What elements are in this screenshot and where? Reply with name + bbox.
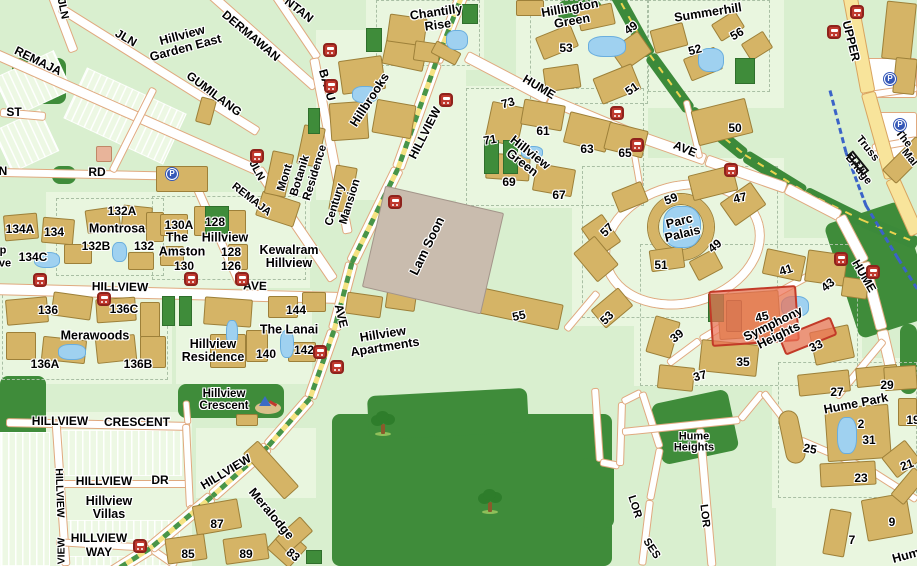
block-number-label: 140	[256, 348, 276, 360]
block-number-label: 9	[889, 516, 896, 528]
bus-stop-icon[interactable]	[834, 252, 848, 266]
map-canvas[interactable]: JLNREMAJAJLNGUMILANGDERMAWANNTANBATUSTNR…	[0, 0, 917, 566]
bus-stop-icon[interactable]	[323, 43, 337, 57]
block-number-label: 136C	[110, 303, 139, 315]
block-number-label: 130	[174, 260, 194, 272]
block-number-label: 63	[580, 143, 593, 155]
bus-stop-icon[interactable]	[439, 93, 453, 107]
building	[892, 57, 917, 95]
street-label: LOR	[625, 494, 643, 520]
block-number-label: 73	[500, 95, 516, 111]
block-number-label: 89	[239, 548, 252, 560]
street-label: VIEW	[57, 538, 68, 565]
block-number-label: 37	[692, 368, 708, 384]
car-park-icon[interactable]: P	[894, 119, 906, 131]
block-number-label: 87	[210, 518, 223, 530]
bus-stop-icon[interactable]	[33, 273, 47, 287]
pipeline-dashed-line	[829, 90, 848, 153]
block-number-label: 71	[482, 133, 497, 148]
block-number-label: 136B	[124, 358, 153, 370]
water-pool	[837, 417, 857, 454]
street-label: N	[0, 165, 7, 177]
block-number-label: 50	[728, 122, 741, 134]
block-number-label: 132	[134, 240, 154, 252]
sports-court	[179, 296, 192, 326]
block-number-label: 142	[294, 344, 314, 356]
car-park-icon[interactable]: P	[166, 168, 178, 180]
sports-court	[366, 28, 382, 52]
block-number-label: 132B	[82, 240, 111, 252]
bus-stop-icon[interactable]	[250, 149, 264, 163]
building	[345, 292, 384, 319]
water-pool	[588, 36, 626, 57]
bus-stop-icon[interactable]	[184, 272, 198, 286]
sports-court	[306, 550, 322, 564]
block-number-label: 69	[502, 176, 515, 188]
place-label: Hillview Apartments	[348, 323, 421, 360]
water-pool	[58, 344, 86, 360]
block-number-label: 61	[536, 125, 549, 137]
bus-stop-icon[interactable]	[724, 163, 738, 177]
place-label: The Lanai	[260, 324, 318, 337]
street-label: LOR	[697, 504, 711, 528]
tree-icon	[477, 489, 503, 515]
street-label: DERMAWAN	[220, 8, 283, 63]
block-number-label: 67	[552, 189, 565, 201]
water-pool	[446, 30, 468, 50]
road	[646, 447, 664, 500]
park-area	[580, 458, 614, 528]
bus-stop-icon[interactable]	[850, 5, 864, 19]
block-number-label: 19	[906, 414, 917, 426]
block-number-label: 132A	[108, 205, 137, 217]
block-number-label: 128	[221, 246, 241, 258]
bus-stop-icon[interactable]	[324, 79, 338, 93]
bus-stop-icon[interactable]	[827, 25, 841, 39]
water-pool	[112, 242, 127, 262]
sports-court	[462, 4, 478, 24]
bus-stop-icon[interactable]	[330, 360, 344, 374]
street-label: WAY	[86, 546, 112, 558]
bus-stop-icon[interactable]	[866, 265, 880, 279]
block-number-label: 55	[511, 309, 527, 324]
place-label: Montrosa	[89, 223, 145, 236]
street-label: HILLVIEW	[76, 475, 132, 487]
building	[371, 99, 416, 139]
sports-court	[735, 58, 755, 84]
block-number-label: 47	[732, 191, 748, 206]
street-label: ve	[0, 258, 11, 269]
building	[657, 364, 695, 392]
place-label: Merawoods	[61, 330, 130, 343]
place-label: Hillview	[202, 232, 249, 245]
street-label: HILLVIEW	[53, 468, 66, 518]
bus-stop-icon[interactable]	[97, 292, 111, 306]
block-number-label: 134A	[6, 223, 35, 235]
street-label: CRESCENT	[104, 416, 170, 428]
block-number-label: 134C	[19, 251, 48, 263]
place-label: Hillview Garden East	[145, 20, 223, 64]
block-number-label: 25	[802, 442, 817, 457]
car-park-icon[interactable]: P	[884, 73, 896, 85]
building	[819, 461, 876, 488]
street-label: RD	[88, 166, 105, 178]
block-number-label: 128	[205, 216, 225, 228]
bus-stop-icon[interactable]	[235, 272, 249, 286]
bus-stop-icon[interactable]	[313, 345, 327, 359]
terrace-houses	[60, 430, 182, 476]
building	[156, 166, 208, 192]
block-number-label: 27	[830, 386, 843, 398]
block-number-label: 136	[38, 304, 58, 316]
block-number-label: 29	[880, 379, 893, 391]
block-number-label: 7	[849, 534, 856, 546]
tree-icon	[370, 411, 396, 437]
building	[96, 146, 112, 162]
place-label: Hillview Villas	[86, 495, 133, 521]
place-label: Amston	[159, 246, 206, 259]
place-label: The	[166, 232, 188, 245]
street-label: ST	[6, 106, 21, 118]
sports-court	[162, 296, 175, 326]
block-number-label: 144	[286, 304, 306, 316]
block-number-label: 45	[754, 310, 770, 325]
block-number-label: 85	[181, 548, 194, 560]
street-label: DR	[151, 474, 168, 486]
sports-court	[308, 108, 320, 134]
playground-icon	[255, 396, 281, 414]
place-label: Kewalram Hillview	[259, 244, 318, 270]
place-label: Hume Heights	[674, 432, 714, 455]
building	[140, 302, 160, 338]
block-number-label: 23	[854, 472, 867, 484]
block-number-label: 2	[858, 418, 865, 430]
block-number-label: 51	[654, 259, 667, 271]
place-label: Hillview Residence	[182, 338, 245, 364]
place-label: Hillview Crescent	[199, 389, 248, 413]
street-label: p	[0, 245, 6, 256]
block-number-label: 130A	[165, 219, 194, 231]
block-number-label: 35	[736, 356, 749, 368]
bus-stop-icon[interactable]	[133, 539, 147, 553]
street-label: HILLVIEW	[32, 415, 88, 427]
bus-stop-icon[interactable]	[610, 106, 624, 120]
building	[236, 414, 258, 426]
terrace-houses	[0, 432, 50, 566]
block-number-label: 134	[44, 226, 64, 238]
block-number-label: 53	[559, 42, 572, 54]
block-number-label: 126	[221, 260, 241, 272]
block-number-label: 31	[862, 434, 875, 446]
block-number-label: 136A	[31, 358, 60, 370]
bus-stop-icon[interactable]	[630, 138, 644, 152]
block-number-label: 52	[687, 42, 703, 58]
bus-stop-icon[interactable]	[388, 195, 402, 209]
building	[881, 1, 917, 62]
street-label: HILLVIEW	[71, 532, 127, 544]
building	[128, 252, 154, 270]
